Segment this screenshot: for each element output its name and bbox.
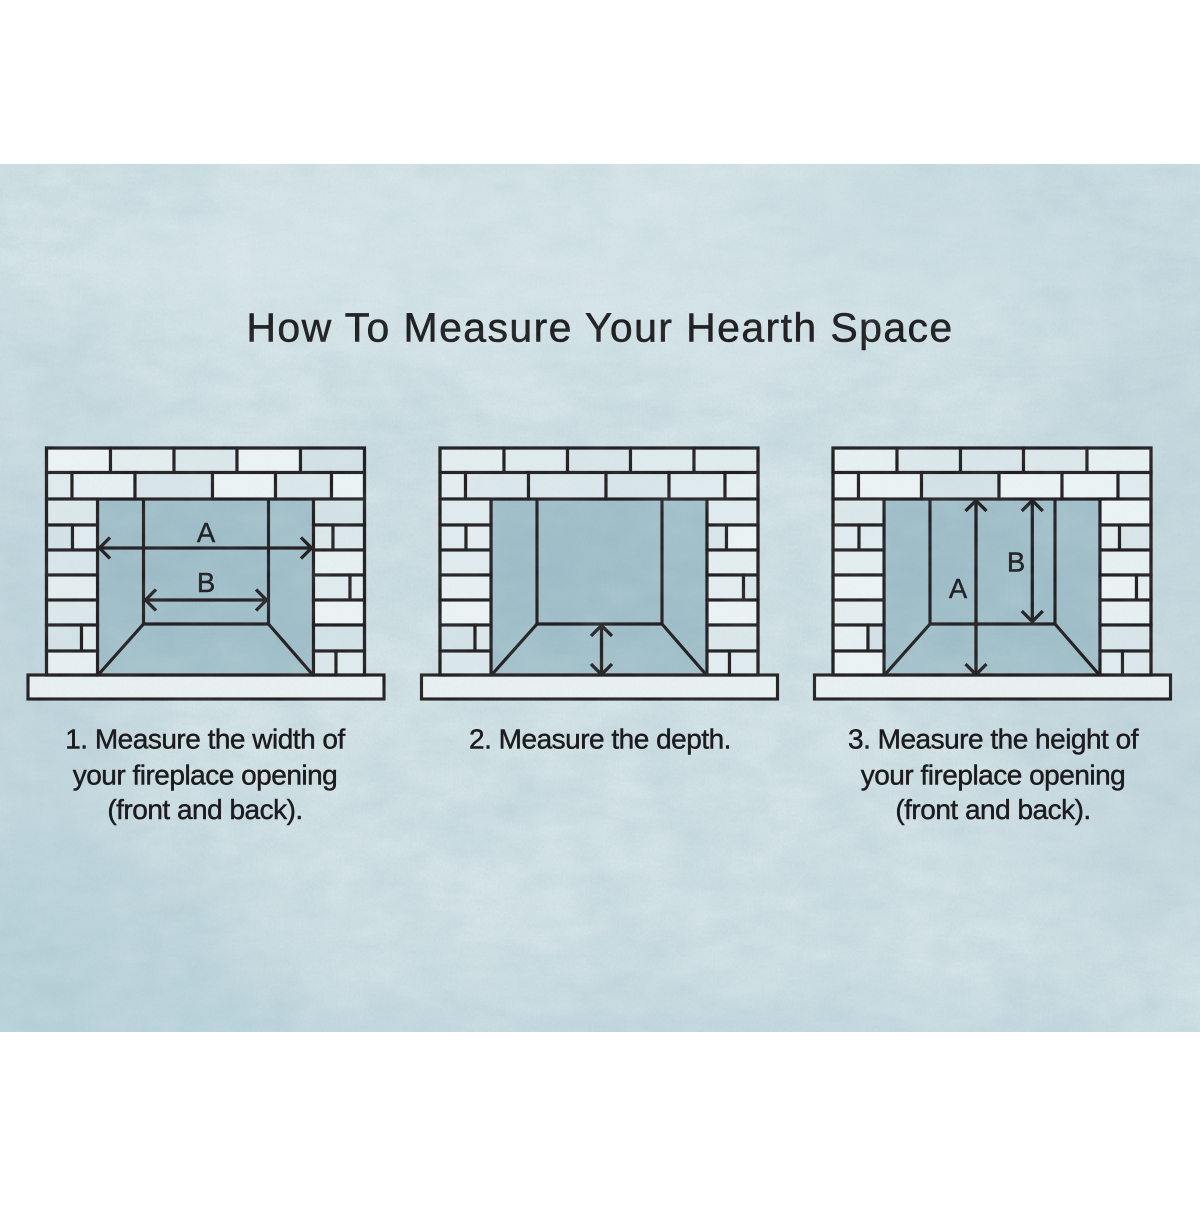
svg-text:1. Measure the width of: 1. Measure the width of <box>65 724 345 755</box>
svg-text:your fireplace opening: your fireplace opening <box>73 760 338 791</box>
svg-text:(front and back).: (front and back). <box>895 794 1090 825</box>
svg-text:(front and back).: (front and back). <box>107 794 302 825</box>
svg-text:your fireplace opening: your fireplace opening <box>861 760 1126 791</box>
svg-text:2. Measure the depth.: 2. Measure the depth. <box>469 724 731 755</box>
svg-text:3. Measure the height of: 3. Measure the height of <box>848 724 1139 755</box>
